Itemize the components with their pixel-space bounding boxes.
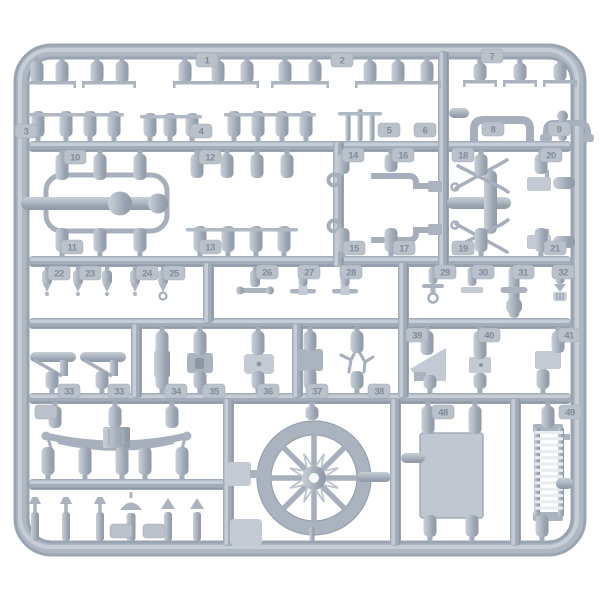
cylinder-part xyxy=(536,515,549,542)
cylinder-part xyxy=(537,369,550,394)
runner-bar xyxy=(29,479,228,490)
svg-text:19: 19 xyxy=(458,244,468,255)
part-number-tag: 8 xyxy=(482,122,504,136)
part-number-tag xyxy=(35,405,57,419)
svg-text:48: 48 xyxy=(438,408,448,419)
part-number-tag: 21 xyxy=(544,241,566,255)
ladder-rung xyxy=(535,463,563,466)
valve-part xyxy=(60,497,72,541)
ladder-gate xyxy=(556,478,573,489)
small-detail-part xyxy=(102,266,112,296)
svg-text:15: 15 xyxy=(349,244,360,255)
panel-gate xyxy=(401,453,425,463)
cylinder-part xyxy=(166,402,179,428)
part-number-tag: 38 xyxy=(368,384,390,398)
svg-text:27: 27 xyxy=(304,268,314,279)
part-number-tag: 28 xyxy=(340,265,362,279)
part-number-tag: 12 xyxy=(199,150,221,164)
cylinder-part xyxy=(351,327,364,353)
leaf-spring-part xyxy=(42,427,192,452)
cylinder-part xyxy=(475,228,488,257)
ladder-rung xyxy=(535,456,563,459)
cylinder-part xyxy=(281,150,294,178)
cylinder-part xyxy=(134,228,147,257)
svg-text:14: 14 xyxy=(348,151,359,162)
sprue-svg: 1273456891012141618201113151719212223242… xyxy=(0,0,600,600)
bracket-part xyxy=(30,352,126,376)
svg-text:6: 6 xyxy=(423,126,428,137)
part-number-tag: 36 xyxy=(257,384,279,398)
cylinder-part xyxy=(306,402,319,420)
part-number-tag: 49 xyxy=(559,405,581,419)
cylinder-part xyxy=(424,375,437,394)
svg-text:7: 7 xyxy=(490,52,495,63)
svg-text:33: 33 xyxy=(64,387,74,398)
svg-text:36: 36 xyxy=(263,387,273,398)
axle-with-loop-part xyxy=(21,175,168,231)
svg-text:12: 12 xyxy=(205,153,215,164)
cylinder-part xyxy=(469,402,482,434)
part-number-tag: 1 xyxy=(196,53,218,67)
cylinder-part xyxy=(251,150,264,178)
cylinder-part xyxy=(116,447,129,480)
part-number-tag: 6 xyxy=(414,123,436,137)
cylinder-part xyxy=(221,150,234,178)
block-part-40 xyxy=(469,357,491,373)
ladder-rung xyxy=(535,500,563,503)
cylinder-part xyxy=(309,57,322,83)
svg-text:24: 24 xyxy=(142,269,153,280)
cylinder-part xyxy=(176,447,189,480)
part-number-tag: 41 xyxy=(558,328,580,342)
ladder-rung xyxy=(535,444,563,447)
rail-bar xyxy=(140,115,202,119)
part-number-tag: 48 xyxy=(432,405,454,419)
t-foot-part xyxy=(173,81,259,88)
part-number-tag: 24 xyxy=(136,266,158,280)
svg-text:9: 9 xyxy=(557,125,562,136)
part-number-tag: 18 xyxy=(452,148,474,162)
ladder-rung xyxy=(535,475,563,478)
svg-text:13: 13 xyxy=(205,243,215,254)
block-part-37 xyxy=(297,349,323,371)
cylinder-part xyxy=(421,57,434,83)
svg-text:17: 17 xyxy=(399,244,409,255)
cylinder-part xyxy=(241,57,254,83)
flat-panel-part xyxy=(420,433,483,518)
part-number-tag: 34 xyxy=(165,384,187,398)
svg-text:34: 34 xyxy=(171,387,182,398)
bottom-block-part xyxy=(230,519,262,545)
svg-text:23: 23 xyxy=(85,269,95,280)
cylinder-part xyxy=(279,57,292,83)
svg-text:11: 11 xyxy=(67,243,77,254)
svg-text:8: 8 xyxy=(491,125,496,136)
t-foot-part xyxy=(503,80,537,87)
t-foot-part xyxy=(82,81,136,88)
part-number-tag: 11 xyxy=(61,240,83,254)
cylinder-part xyxy=(42,447,55,480)
svg-text:28: 28 xyxy=(346,268,356,279)
divider-bar xyxy=(203,262,214,323)
svg-text:39: 39 xyxy=(412,331,422,342)
cylinder-part xyxy=(94,228,107,257)
cylinder-part xyxy=(94,150,107,180)
svg-text:33: 33 xyxy=(114,387,124,398)
part-number-tag: 9 xyxy=(548,122,570,136)
cylinder-part xyxy=(514,59,527,81)
svg-text:21: 21 xyxy=(550,244,561,255)
part-number-tag: 13 xyxy=(199,240,221,254)
ladder-part xyxy=(533,424,570,521)
part-number-tag: 20 xyxy=(540,148,562,162)
cylinder-part xyxy=(252,327,265,355)
part-number-tag: 3 xyxy=(15,124,37,138)
part-number-tag: 23 xyxy=(79,266,101,280)
svg-text:32: 32 xyxy=(558,268,568,279)
svg-text:38: 38 xyxy=(374,387,384,398)
svg-text:26: 26 xyxy=(262,268,272,279)
cylinder-part xyxy=(194,327,207,355)
wheel-right-gate xyxy=(357,472,391,482)
wheel-left-block xyxy=(227,462,260,486)
part-number-tag: 5 xyxy=(378,123,400,137)
ladder-rung xyxy=(535,431,563,434)
cylinder-part xyxy=(474,373,487,394)
cylinder-part xyxy=(79,447,92,480)
part-number-tag: 15 xyxy=(343,241,365,255)
rail-bar xyxy=(186,228,298,232)
part-number-tag: 35 xyxy=(203,384,225,398)
cylinder-part xyxy=(466,515,479,542)
t-foot-part xyxy=(463,80,497,87)
cylinder-part xyxy=(364,57,377,83)
valve-part xyxy=(190,498,204,541)
cylinder-part xyxy=(424,515,437,542)
cylinder-part xyxy=(179,57,192,83)
svg-text:22: 22 xyxy=(54,269,64,280)
svg-text:10: 10 xyxy=(70,153,80,164)
svg-text:20: 20 xyxy=(546,151,556,162)
ladder-rung xyxy=(535,437,563,440)
part-number-tag: 10 xyxy=(64,150,86,164)
cylinder-part xyxy=(351,371,364,394)
cylinder-part xyxy=(56,57,69,83)
rail-bar xyxy=(224,113,316,117)
part-number-tag: 33 xyxy=(58,384,80,398)
part-number-tag: 39 xyxy=(406,328,428,342)
spoked-wheel-part xyxy=(257,421,371,535)
part-number-tag: 22 xyxy=(48,266,70,280)
svg-text:35: 35 xyxy=(209,387,220,398)
svg-text:49: 49 xyxy=(565,408,575,419)
svg-text:31: 31 xyxy=(518,268,529,279)
runner-bar xyxy=(29,141,571,152)
part-number-tag xyxy=(143,524,165,538)
part-number-tag: 14 xyxy=(342,148,364,162)
part-number-tag: 30 xyxy=(472,265,494,279)
part-number-tag: 33 xyxy=(108,384,130,398)
thin-post-part xyxy=(370,113,375,141)
svg-text:40: 40 xyxy=(484,331,494,342)
part-number-tag: 16 xyxy=(392,148,414,162)
rail-bar xyxy=(28,113,124,117)
cylinder-part xyxy=(304,327,317,351)
part-number-tag: 31 xyxy=(512,265,534,279)
part-number-tag: 32 xyxy=(552,265,574,279)
t-foot-part xyxy=(22,81,76,88)
t-foot-part xyxy=(355,81,441,88)
cylinder-part xyxy=(109,402,122,428)
thin-post-part xyxy=(346,113,351,141)
cylinder-part xyxy=(392,57,405,83)
block-cylinder-part xyxy=(527,170,575,249)
part-number-tag: 40 xyxy=(478,328,500,342)
bent-tube-part xyxy=(371,176,442,240)
part-number-tag: 7 xyxy=(481,49,503,63)
svg-text:30: 30 xyxy=(478,268,488,279)
part-number-tag: 27 xyxy=(298,265,320,279)
cylinder-part xyxy=(134,150,147,180)
t-foot-part xyxy=(271,81,329,88)
part-number-tag: 26 xyxy=(256,265,278,279)
svg-text:41: 41 xyxy=(564,331,575,342)
divider-bar xyxy=(510,398,521,546)
cylinder-part xyxy=(542,402,555,428)
svg-text:18: 18 xyxy=(458,151,468,162)
part-number-tag: 4 xyxy=(190,124,212,138)
thin-post-part xyxy=(310,527,315,541)
cylinder-part xyxy=(139,447,152,480)
divider-bar xyxy=(390,398,401,546)
part-number-tag xyxy=(110,524,132,538)
svg-text:16: 16 xyxy=(398,151,408,162)
ladder-rung xyxy=(535,507,563,510)
ladder-rung xyxy=(535,450,563,453)
cylinder-part xyxy=(96,371,109,394)
part-number-tag: 2 xyxy=(331,53,353,67)
svg-text:37: 37 xyxy=(312,387,322,398)
part-number-tag: 17 xyxy=(393,241,415,255)
part-number-tag: 37 xyxy=(306,384,328,398)
part-number-tag: 25 xyxy=(163,266,185,280)
block-part-41 xyxy=(535,351,561,369)
rail-bar xyxy=(338,112,382,116)
part-number-tag: 19 xyxy=(452,241,474,255)
block-part-35 xyxy=(187,353,213,373)
valve-part xyxy=(94,497,106,541)
cylinder-part xyxy=(116,57,129,83)
part-number-tag: 29 xyxy=(434,265,456,279)
sprue-photo: 1273456891012141618201113151719212223242… xyxy=(0,0,600,600)
cylinder-part xyxy=(156,327,169,355)
cylinder-part xyxy=(46,371,59,394)
svg-text:29: 29 xyxy=(440,268,450,279)
svg-text:25: 25 xyxy=(169,269,180,280)
ladder-rung xyxy=(535,494,563,497)
cylinder-part xyxy=(475,150,488,176)
svg-text:2: 2 xyxy=(340,56,345,67)
ladder-rung xyxy=(535,469,563,472)
divider-bar xyxy=(131,323,142,398)
cylinder-part xyxy=(91,57,104,83)
svg-text:3: 3 xyxy=(24,127,29,138)
